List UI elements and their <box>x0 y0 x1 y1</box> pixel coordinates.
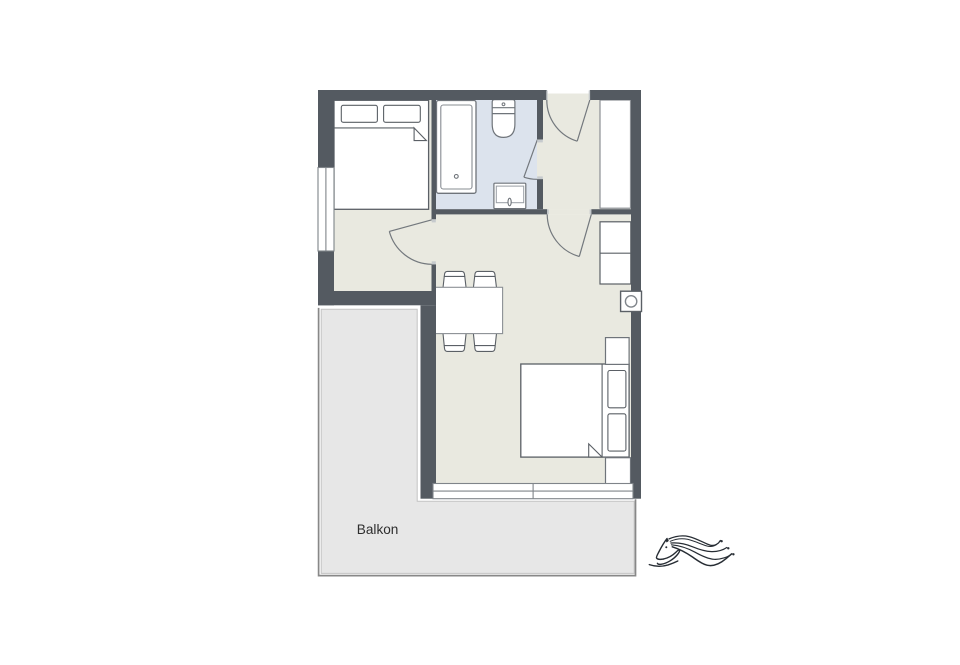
svg-text:Balkon: Balkon <box>357 522 399 537</box>
